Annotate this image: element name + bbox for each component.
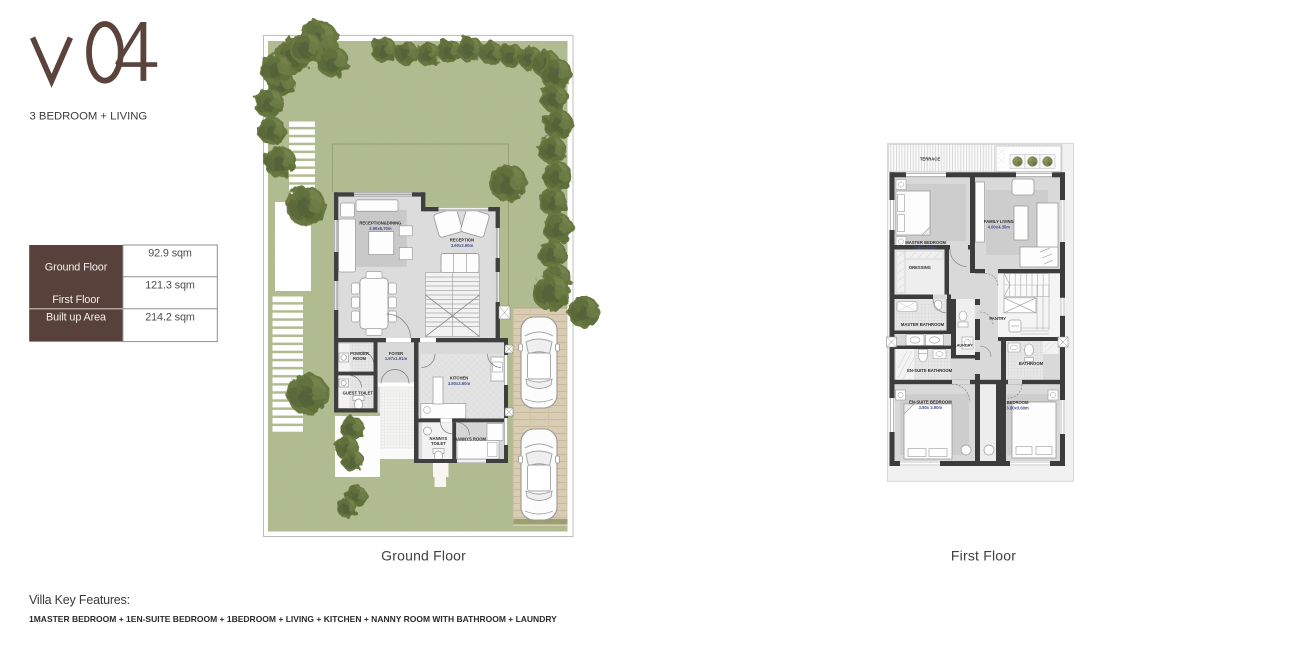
svg-text:First Floor: First Floor bbox=[951, 548, 1016, 564]
svg-text:LAUNDRY: LAUNDRY bbox=[954, 344, 973, 348]
svg-text:BATHROOM: BATHROOM bbox=[1019, 361, 1044, 366]
svg-text:4.00x4.35m: 4.00x4.35m bbox=[988, 225, 1011, 230]
svg-text:3.80x 3.90m: 3.80x 3.90m bbox=[919, 405, 943, 410]
svg-text:1MASTER BEDROOM + 1EN-SUITE BE: 1MASTER BEDROOM + 1EN-SUITE BEDROOM + 1B… bbox=[29, 614, 557, 624]
svg-text:MASTER BEDROOM: MASTER BEDROOM bbox=[905, 240, 946, 245]
svg-text:214.2 sqm: 214.2 sqm bbox=[145, 312, 195, 324]
svg-text:ROOM: ROOM bbox=[353, 356, 367, 361]
svg-text:3.80x.360m: 3.80x.360m bbox=[914, 246, 937, 251]
svg-text:Ground Floor: Ground Floor bbox=[45, 262, 108, 274]
svg-text:NANNYS ROOM: NANNYS ROOM bbox=[454, 437, 486, 442]
svg-text:3.90x3.90m: 3.90x3.90m bbox=[451, 243, 474, 248]
svg-text:MASTER BATHROOM: MASTER BATHROOM bbox=[901, 322, 945, 327]
svg-text:FAMILY LIVING: FAMILY LIVING bbox=[984, 219, 1014, 224]
svg-text:RECEPTION&DINING: RECEPTION&DINING bbox=[359, 221, 401, 226]
svg-text:Ground Floor: Ground Floor bbox=[381, 548, 466, 564]
svg-text:KITCHEN: KITCHEN bbox=[450, 376, 469, 381]
svg-text:3 BEDROOM + LIVING: 3 BEDROOM + LIVING bbox=[30, 111, 148, 123]
svg-text:92.9 sqm: 92.9 sqm bbox=[148, 248, 192, 260]
svg-text:BEDROOM: BEDROOM bbox=[1007, 400, 1029, 405]
svg-text:3.80x3.60m: 3.80x3.60m bbox=[448, 381, 471, 386]
svg-text:RECEPTION: RECEPTION bbox=[450, 238, 474, 243]
svg-text:1.97x1.91m: 1.97x1.91m bbox=[385, 356, 408, 361]
svg-text:121.3 sqm: 121.3 sqm bbox=[145, 280, 195, 292]
svg-text:3.80x3.60m: 3.80x3.60m bbox=[1006, 406, 1029, 411]
svg-text:EN-SUITE BEDROOM: EN-SUITE BEDROOM bbox=[909, 400, 952, 405]
svg-text:GUEST TOILET: GUEST TOILET bbox=[343, 391, 374, 396]
svg-text:EN-SUITE BATHROOM: EN-SUITE BATHROOM bbox=[907, 368, 953, 373]
svg-text:Villa Key Features:: Villa Key Features: bbox=[29, 593, 130, 607]
svg-text:2.90x6.70m: 2.90x6.70m bbox=[369, 226, 392, 231]
svg-text:Built up Area: Built up Area bbox=[46, 312, 106, 324]
svg-text:DRESSING: DRESSING bbox=[909, 265, 931, 270]
svg-text:First Floor: First Floor bbox=[52, 294, 100, 306]
svg-text:PANTRY: PANTRY bbox=[989, 316, 1006, 321]
svg-text:TOILET: TOILET bbox=[431, 441, 446, 446]
svg-text:TERRACE: TERRACE bbox=[920, 157, 940, 162]
